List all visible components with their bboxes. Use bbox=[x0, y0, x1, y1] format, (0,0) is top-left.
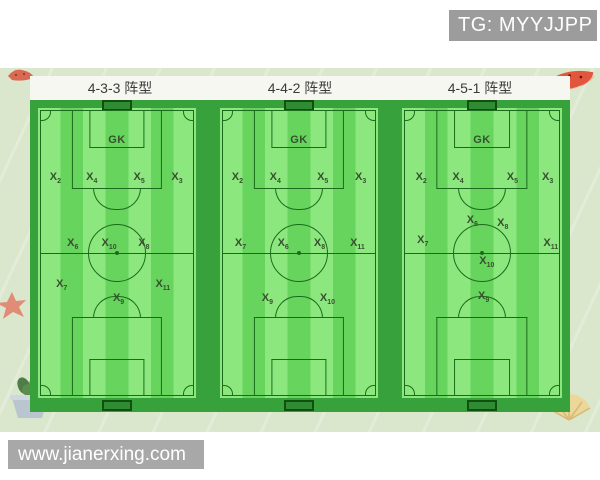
player-x7: X7 bbox=[417, 234, 428, 248]
pitch-markings bbox=[40, 110, 194, 396]
player-x4: X4 bbox=[270, 171, 281, 185]
player-x2: X2 bbox=[416, 171, 427, 185]
penalty-arc-top bbox=[458, 188, 506, 210]
player-x10: X10 bbox=[479, 255, 494, 269]
player-x4: X4 bbox=[452, 171, 463, 185]
pitch-442: GKX2X4X5X3X7X6X8X11X9X10 bbox=[220, 108, 378, 398]
player-x7: X7 bbox=[56, 278, 67, 292]
player-x10: X10 bbox=[102, 237, 117, 251]
corner-arc-bottom-left bbox=[40, 385, 51, 396]
player-x8: X8 bbox=[497, 217, 508, 231]
formation-title-451: 4-5-1 阵型 bbox=[390, 78, 570, 98]
player-x6: X6 bbox=[467, 214, 478, 228]
player-x6: X6 bbox=[67, 237, 78, 251]
player-x8: X8 bbox=[138, 237, 149, 251]
corner-arc-top-left bbox=[404, 110, 415, 121]
pitch-band: GKX2X4X5X3X6X10X8X7X9X11GKX2X4X5X3X7X6X8… bbox=[30, 100, 570, 412]
goal-box-bottom bbox=[284, 400, 314, 411]
pitch-markings bbox=[404, 110, 560, 396]
player-x3: X3 bbox=[171, 171, 182, 185]
formation-title-442: 4-4-2 阵型 bbox=[210, 78, 390, 98]
player-x6: X6 bbox=[278, 237, 289, 251]
pitch-markings bbox=[222, 110, 376, 396]
corner-arc-top-right bbox=[365, 110, 376, 121]
player-x10: X10 bbox=[320, 292, 335, 306]
player-x5: X5 bbox=[507, 171, 518, 185]
penalty-arc-top bbox=[275, 188, 323, 210]
player-x3: X3 bbox=[542, 171, 553, 185]
photo-panel: 4-3-3 阵型 4-4-2 阵型 4-5-1 阵型 GKX2X4X5X3X6X… bbox=[0, 68, 600, 432]
gk-label: GK bbox=[108, 134, 126, 146]
corner-arc-top-right bbox=[183, 110, 194, 121]
penalty-arc-top bbox=[93, 188, 141, 210]
player-x9: X9 bbox=[113, 292, 124, 306]
goal-area-bottom bbox=[454, 359, 510, 396]
player-x5: X5 bbox=[317, 171, 328, 185]
gk-label: GK bbox=[290, 134, 308, 146]
goal-area-bottom bbox=[89, 359, 144, 396]
center-spot bbox=[297, 251, 301, 255]
screenshot-canvas: TG: MYYJJPP bbox=[0, 0, 600, 480]
player-x3: X3 bbox=[355, 171, 366, 185]
goal-area-bottom bbox=[271, 359, 326, 396]
formation-title-bar: 4-3-3 阵型 4-4-2 阵型 4-5-1 阵型 bbox=[30, 76, 570, 100]
formation-title-433: 4-3-3 阵型 bbox=[30, 78, 210, 98]
player-x9: X9 bbox=[478, 289, 489, 303]
corner-arc-top-left bbox=[40, 110, 51, 121]
player-x11: X11 bbox=[155, 278, 170, 292]
watermark-bar: www.jianerxing.com bbox=[8, 440, 204, 469]
player-x2: X2 bbox=[232, 171, 243, 185]
center-spot bbox=[115, 251, 119, 255]
gk-label: GK bbox=[473, 134, 491, 146]
player-x11: X11 bbox=[543, 237, 558, 251]
goal-box-bottom bbox=[102, 400, 132, 411]
player-x5: X5 bbox=[133, 171, 144, 185]
player-x4: X4 bbox=[86, 171, 97, 185]
pitch-451: GKX2X4X5X3X6X8X7X11X10X9 bbox=[402, 108, 562, 398]
starfish-icon bbox=[0, 290, 31, 327]
corner-arc-bottom-right bbox=[183, 385, 194, 396]
player-x9: X9 bbox=[262, 292, 273, 306]
penalty-arc-bottom bbox=[275, 296, 323, 318]
player-x11: X11 bbox=[350, 237, 365, 251]
tg-badge: TG: MYYJJPP bbox=[449, 10, 597, 41]
corner-arc-bottom-right bbox=[365, 385, 376, 396]
goal-box-bottom bbox=[467, 400, 497, 411]
corner-arc-bottom-left bbox=[222, 385, 233, 396]
player-x8: X8 bbox=[314, 237, 325, 251]
corner-arc-bottom-right bbox=[549, 385, 560, 396]
corner-arc-top-right bbox=[549, 110, 560, 121]
player-x7: X7 bbox=[235, 237, 246, 251]
corner-arc-top-left bbox=[222, 110, 233, 121]
corner-arc-bottom-left bbox=[404, 385, 415, 396]
pitch-433: GKX2X4X5X3X6X10X8X7X9X11 bbox=[38, 108, 196, 398]
player-x2: X2 bbox=[50, 171, 61, 185]
